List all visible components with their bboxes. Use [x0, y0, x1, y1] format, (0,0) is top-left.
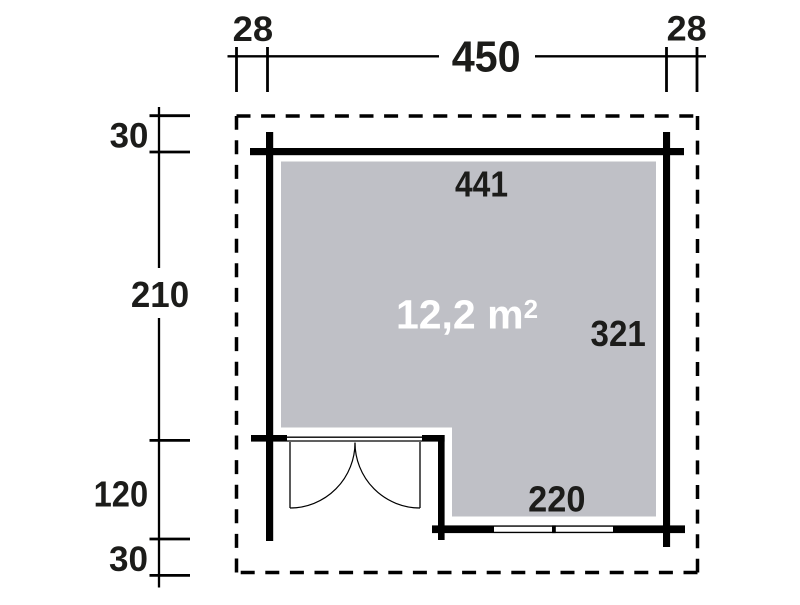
- svg-text:441: 441: [455, 164, 508, 205]
- svg-text:120: 120: [94, 474, 149, 515]
- svg-text:321: 321: [591, 313, 646, 354]
- svg-text:12,2 m2: 12,2 m2: [396, 292, 538, 338]
- svg-text:28: 28: [667, 10, 707, 49]
- svg-text:30: 30: [110, 116, 149, 155]
- svg-text:210: 210: [131, 274, 189, 315]
- svg-text:30: 30: [109, 540, 148, 579]
- svg-text:28: 28: [233, 10, 274, 49]
- svg-text:450: 450: [452, 33, 521, 82]
- svg-text:220: 220: [528, 479, 585, 520]
